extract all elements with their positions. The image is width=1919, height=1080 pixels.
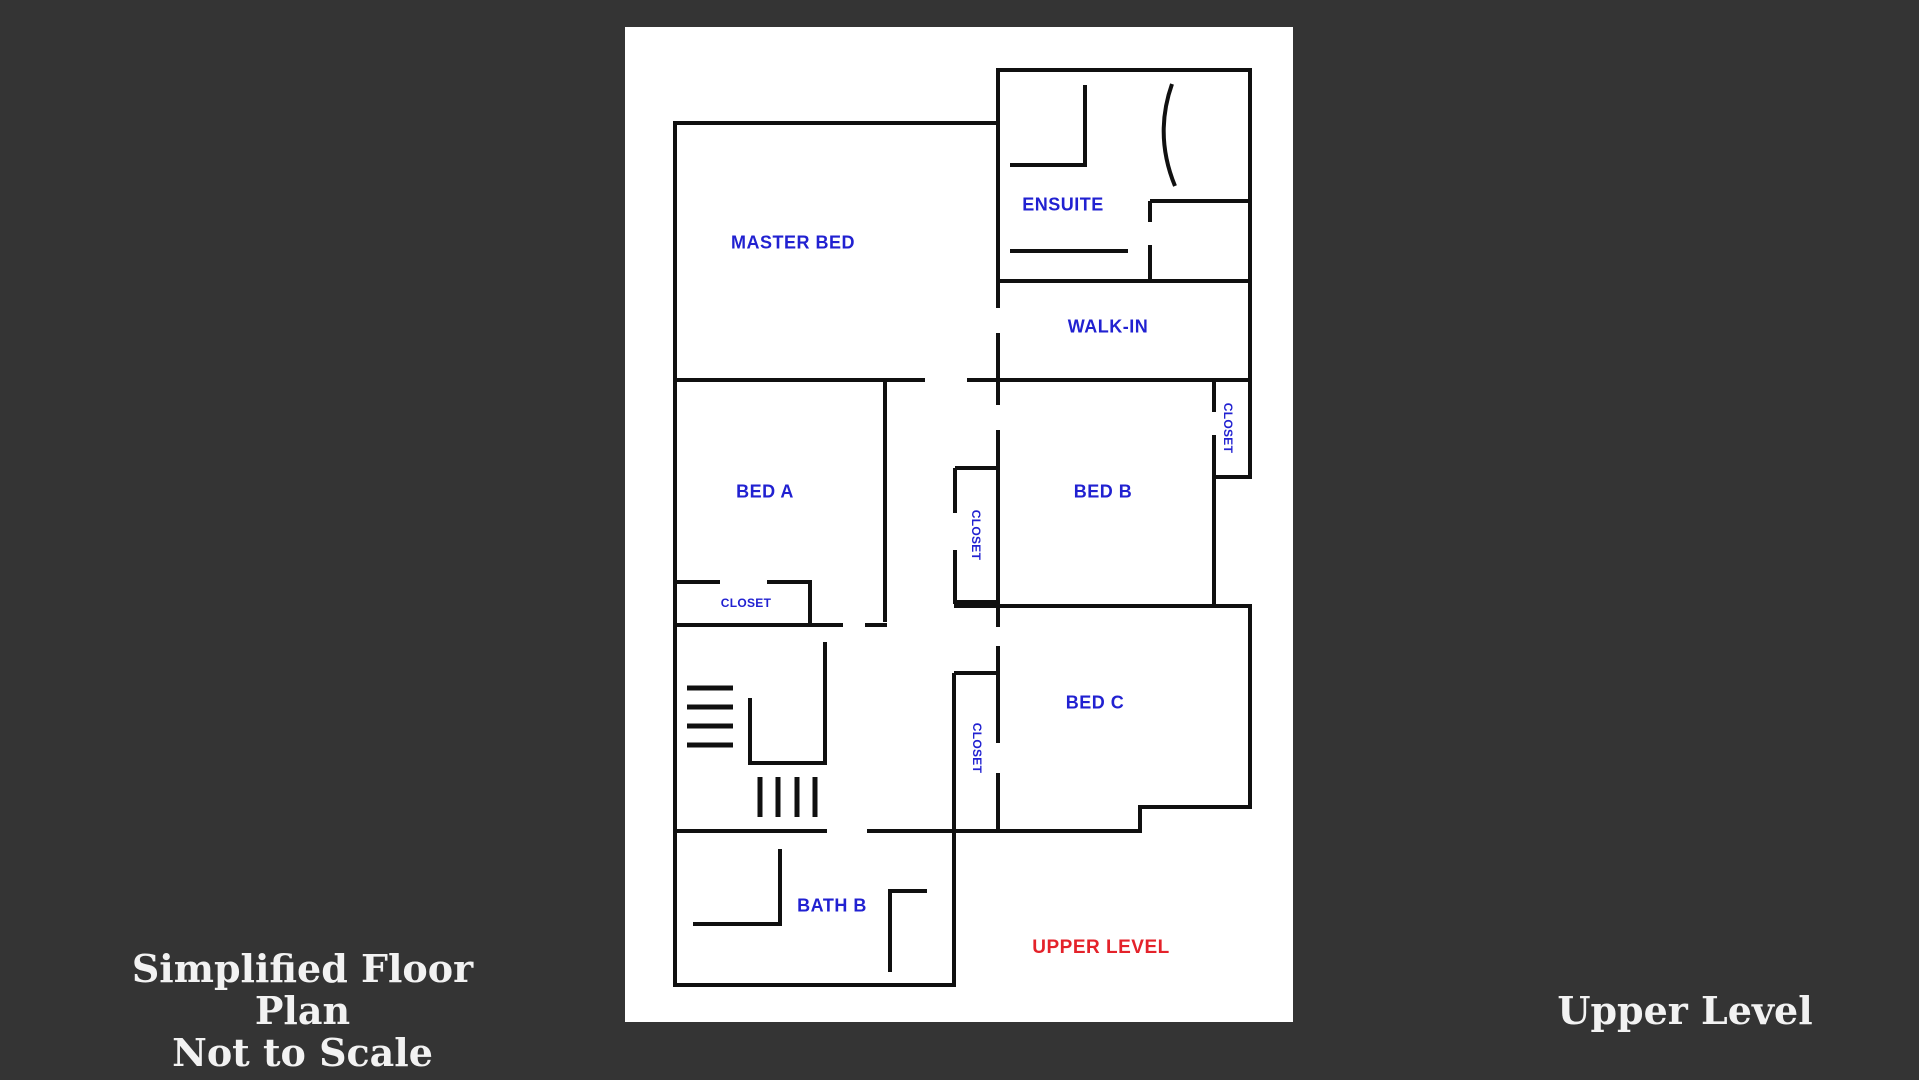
room-label-closet-bed-a: CLOSET — [721, 596, 771, 610]
caption-title-line2: Not to Scale — [85, 1032, 520, 1074]
room-label-master-bed: MASTER BED — [731, 233, 855, 254]
room-label-bed-c: BED C — [1066, 693, 1125, 714]
room-label-walk-in: WALK-IN — [1068, 317, 1148, 338]
room-label-bed-a: BED A — [736, 482, 794, 503]
room-label-closet-bed-c: CLOSET — [970, 723, 984, 773]
floor-tag-upper-level: UPPER LEVEL — [1032, 937, 1169, 959]
room-label-ensuite: ENSUITE — [1022, 195, 1104, 216]
floor-plan-paper: MASTER BED ENSUITE WALK-IN BED A BED B B… — [625, 27, 1293, 1022]
room-label-bath-b: BATH B — [797, 896, 867, 917]
caption-level-name: Upper Level — [1545, 990, 1825, 1032]
caption-title: Simplified Floor Plan Not to Scale — [85, 948, 520, 1073]
floor-plan-walls — [625, 27, 1293, 1022]
caption-title-line1: Simplified Floor Plan — [85, 948, 520, 1032]
room-label-closet-center: CLOSET — [969, 510, 983, 560]
room-label-bed-b: BED B — [1074, 482, 1133, 503]
floor-plan-canvas: MASTER BED ENSUITE WALK-IN BED A BED B B… — [0, 0, 1919, 1080]
ensuite-door-arc — [1164, 84, 1175, 186]
room-label-closet-bed-b: CLOSET — [1221, 403, 1235, 453]
